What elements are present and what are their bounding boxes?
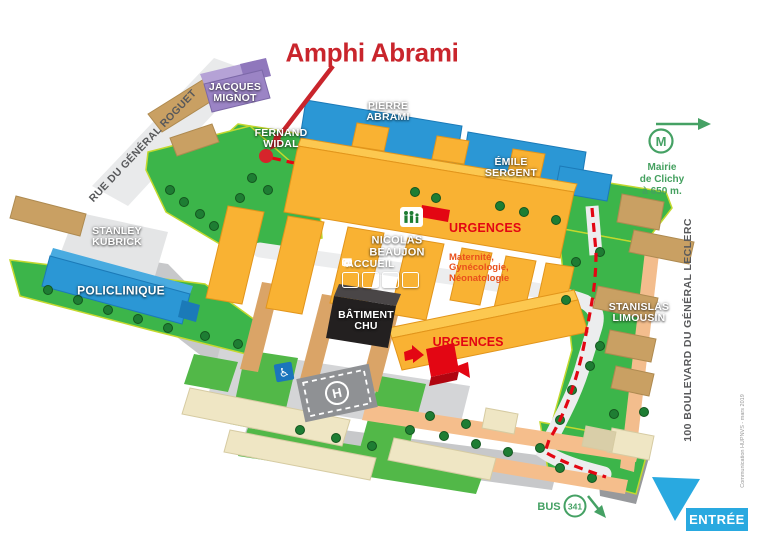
handicap-parking-icon: ♿ — [274, 362, 295, 383]
entrance-marker-triangle — [652, 477, 700, 521]
building-west — [10, 196, 86, 236]
urgences-entrance-cube — [426, 343, 459, 386]
map-canvas: H ♿ M — [0, 0, 765, 540]
building-batiment-chu — [326, 284, 401, 348]
metro-group: M — [650, 118, 712, 153]
wing-5 — [450, 248, 492, 305]
wing-4 — [390, 238, 444, 320]
roof-block-3 — [508, 149, 545, 177]
bus-group: 341 — [565, 496, 607, 519]
metro-letter: M — [656, 134, 667, 149]
amphi-location-dot — [259, 149, 273, 163]
hospital-campus-map: H ♿ M — [0, 0, 765, 540]
bus-line-number: 341 — [568, 502, 582, 512]
roof-block-2 — [432, 136, 469, 164]
roof-block-1 — [352, 123, 389, 151]
